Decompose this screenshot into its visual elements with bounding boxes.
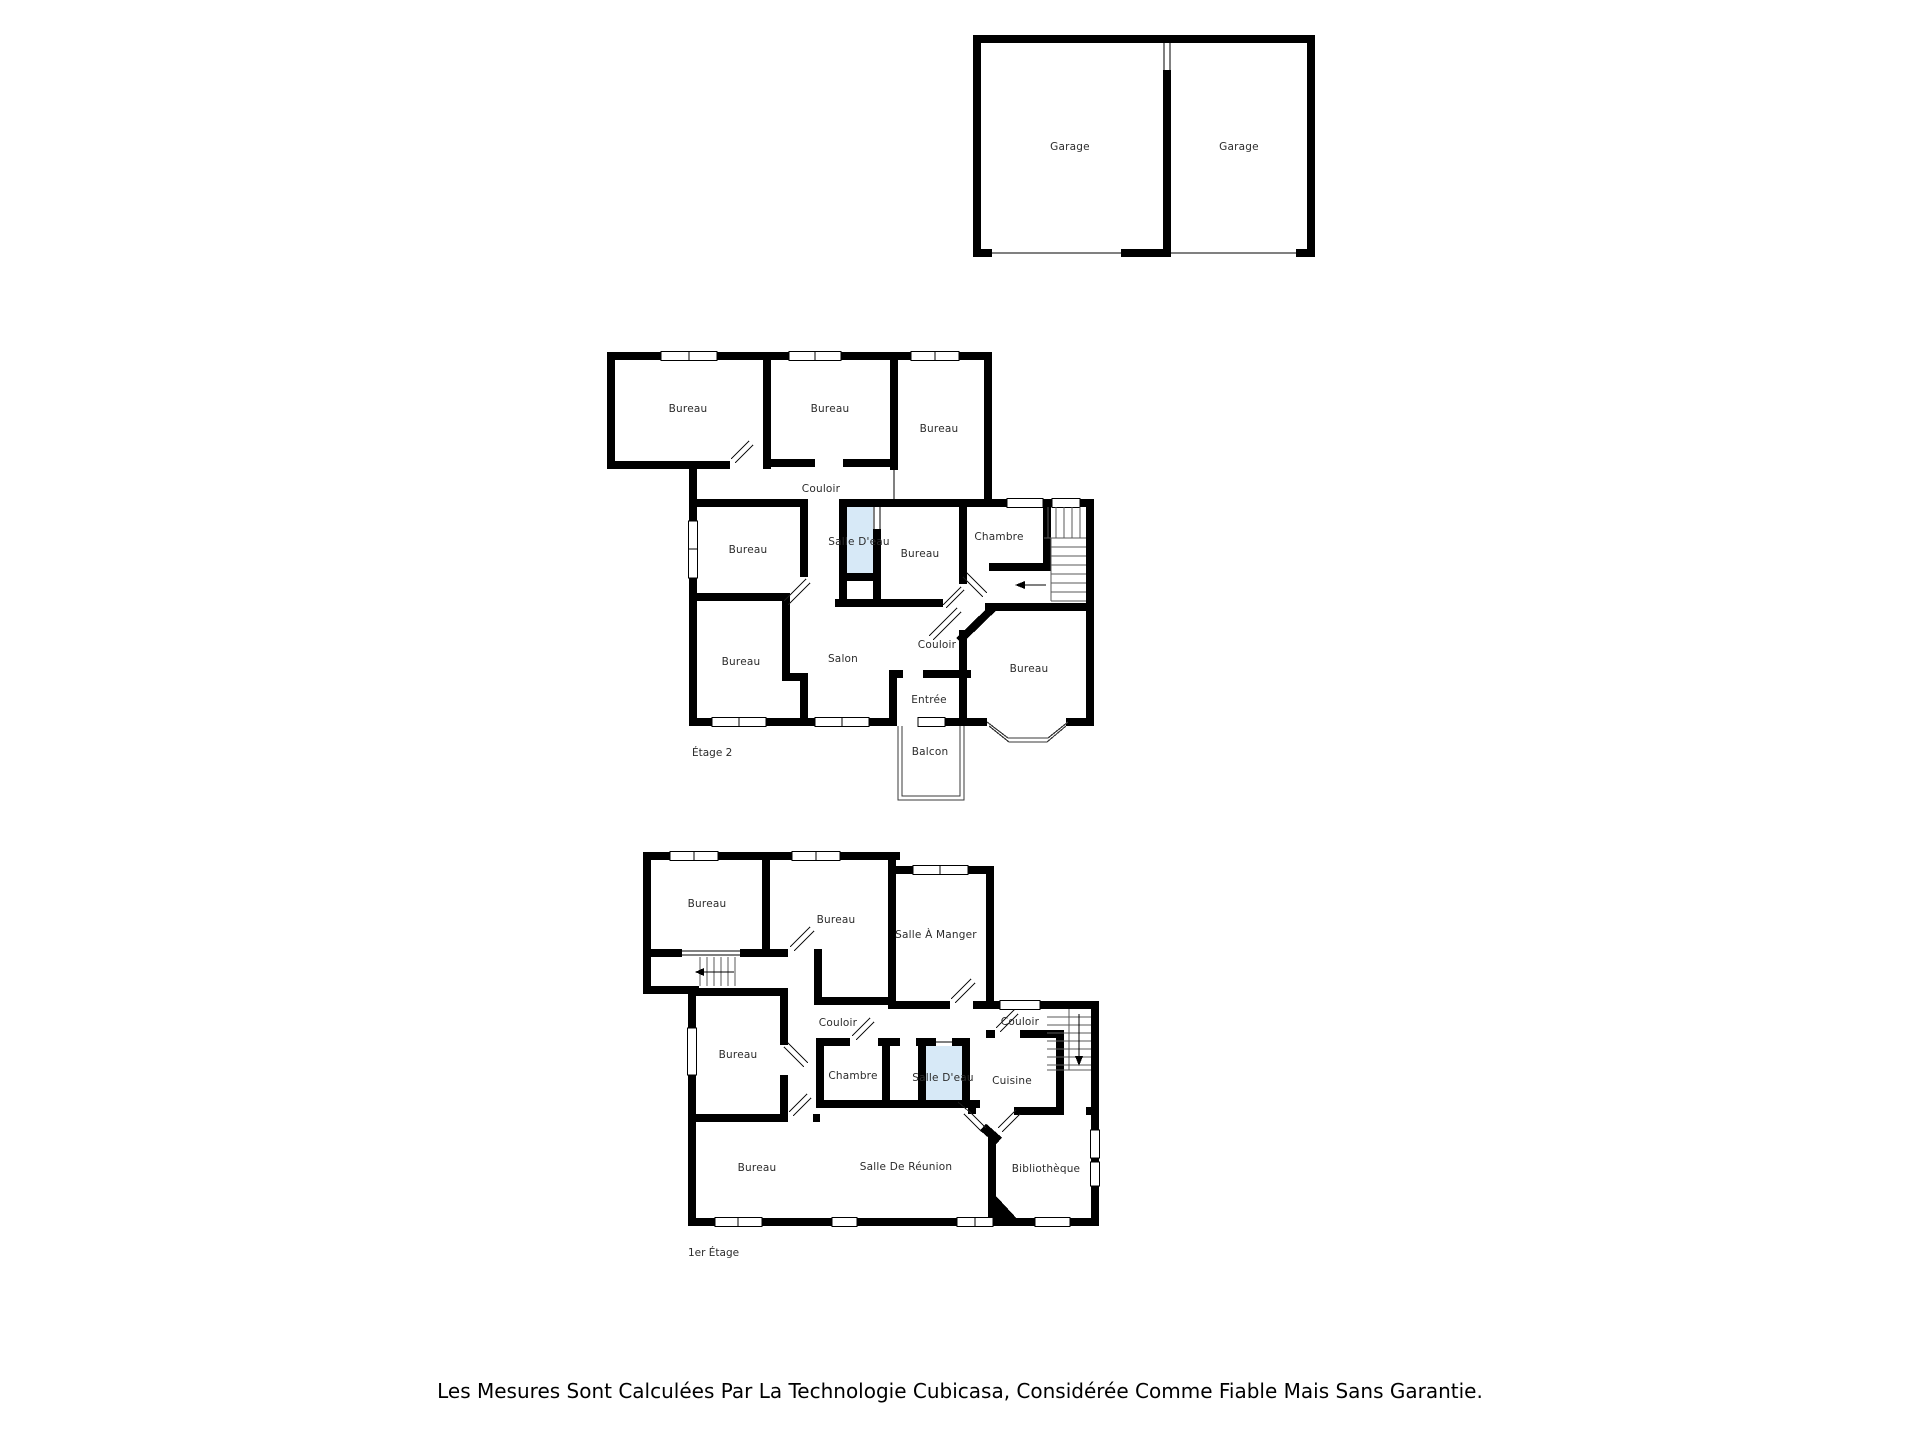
room-label-couloir: Couloir [1001, 1016, 1039, 1028]
room-label-bureau: Bureau [738, 1162, 777, 1174]
room-label-bureau: Bureau [669, 403, 708, 415]
room-label-salon: Salon [828, 653, 858, 665]
room-label-cuisine: Cuisine [992, 1075, 1032, 1087]
room-label-bureau: Bureau [688, 898, 727, 910]
room-label-garage: Garage [1219, 141, 1259, 153]
floorplan-page: Garage Garage Bureau Bureau Bureau Coulo… [0, 0, 1920, 1440]
room-label-couloir: Couloir [918, 639, 956, 651]
floorplan-canvas [0, 0, 1920, 1440]
room-label-salle-deau: Salle D'eau [828, 536, 889, 548]
room-label-entree: Entrée [911, 694, 947, 706]
room-label-balcon: Balcon [912, 746, 949, 758]
balcony-outline [898, 726, 964, 800]
stairs [1047, 1009, 1091, 1070]
etage-2-plan [607, 352, 1094, 801]
room-label-chambre: Chambre [828, 1070, 877, 1082]
bay-window [987, 722, 1068, 742]
stairs [695, 957, 735, 986]
room-label-bureau: Bureau [901, 548, 940, 560]
room-label-bibliotheque: Bibliothèque [1012, 1163, 1080, 1175]
garage-plan [973, 35, 1315, 257]
room-label-bureau: Bureau [719, 1049, 758, 1061]
floor-label-1er-etage: 1er Étage [688, 1247, 739, 1259]
room-label-bureau: Bureau [729, 544, 768, 556]
walls [973, 35, 1315, 257]
room-label-chambre: Chambre [974, 531, 1023, 543]
room-label-salle-deau: Salle D'eau [912, 1072, 973, 1084]
room-label-bureau: Bureau [920, 423, 959, 435]
room-label-bureau: Bureau [811, 403, 850, 415]
room-label-bureau: Bureau [1010, 663, 1049, 675]
floor-label-etage-2: Étage 2 [692, 747, 732, 759]
room-label-bureau: Bureau [722, 656, 761, 668]
room-label-garage: Garage [1050, 141, 1090, 153]
room-label-couloir: Couloir [819, 1017, 857, 1029]
measurement-disclaimer: Les Mesures Sont Calculées Par La Techno… [0, 1379, 1920, 1403]
room-label-couloir: Couloir [802, 483, 840, 495]
room-label-bureau: Bureau [817, 914, 856, 926]
room-label-salle-a-manger: Salle À Manger [895, 929, 977, 941]
room-label-salle-de-reunion: Salle De Réunion [860, 1161, 952, 1173]
